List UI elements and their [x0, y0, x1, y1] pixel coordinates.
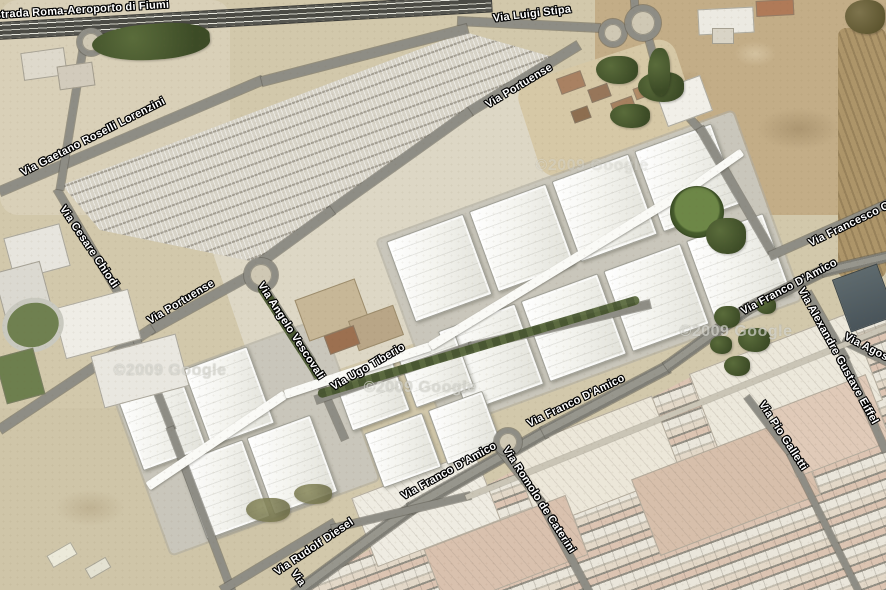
sports-field	[0, 348, 46, 405]
google-watermark: ©2009 Google	[536, 157, 649, 175]
roundabout	[599, 19, 627, 47]
google-watermark: ©2009 Google	[114, 362, 227, 380]
scrub	[294, 484, 332, 504]
trees	[596, 56, 638, 84]
satellite-map-canvas[interactable]: ©2009 Google ©2009 Google ©2009 Google ©…	[0, 0, 886, 590]
scrub	[246, 498, 290, 522]
building	[57, 62, 96, 91]
trees	[724, 356, 750, 376]
trees	[610, 104, 650, 128]
terrain-rough-rightedge	[838, 28, 886, 278]
trees	[648, 48, 670, 96]
scrub	[845, 0, 885, 34]
google-watermark: ©2009 Google	[364, 379, 477, 397]
roundabout	[625, 5, 661, 41]
house-red-roof	[756, 0, 795, 17]
google-watermark: ©2009 Google	[680, 323, 793, 341]
trees	[706, 218, 746, 254]
building	[712, 28, 734, 44]
